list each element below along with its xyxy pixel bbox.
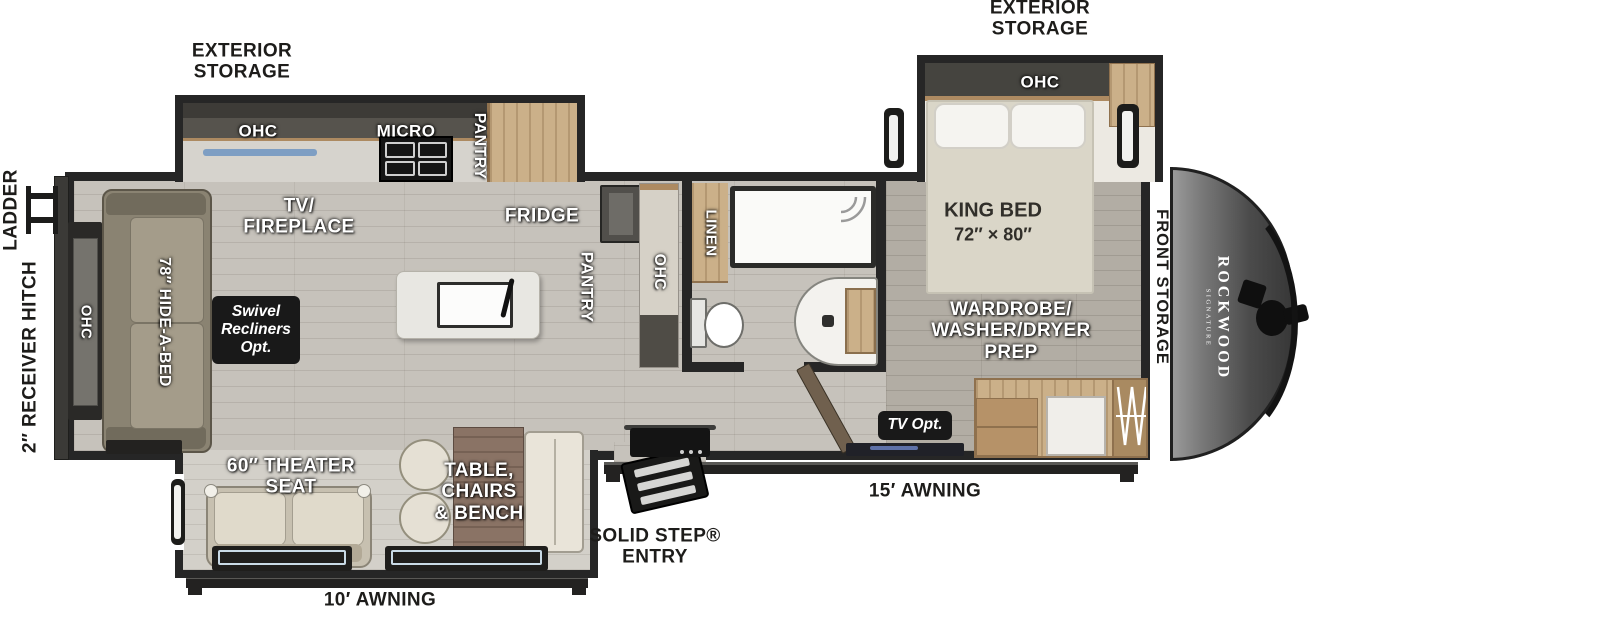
awning-foot: [606, 473, 620, 482]
brand-logo: ROCKWOOD SIGNATURE: [1205, 256, 1232, 380]
shower-head-icon: [839, 195, 867, 223]
vanity-faucet-icon: [822, 315, 834, 327]
fridge: [600, 185, 642, 243]
awning-foot: [188, 587, 202, 595]
wardrobe-drawer: [1046, 396, 1106, 456]
fridge-face: [609, 193, 633, 235]
receiver-hitch-label: 2″ RECEIVER HITCH: [19, 261, 40, 453]
mat-inner: [391, 550, 542, 565]
king-bed-label: KING BED 72″ × 80″: [944, 198, 1042, 246]
dinette-label: TABLE, CHAIRS & BENCH: [434, 460, 523, 524]
toilet-icon: [704, 302, 744, 348]
cupholder-icon: [204, 484, 218, 498]
hide-a-bed-label: 78″ HIDE-A-BED: [155, 257, 173, 387]
burner: [418, 142, 448, 158]
awning-foot: [1120, 473, 1134, 482]
wardrobe-prep-label: WARDROBE/ WASHER/DRYER PREP: [931, 299, 1090, 363]
griddle-knob: [680, 450, 684, 454]
pillow: [1010, 103, 1086, 149]
brand-sub: SIGNATURE: [1205, 256, 1212, 380]
cooktop-icon: [379, 136, 453, 182]
media-console: [846, 443, 964, 456]
shower: [730, 186, 876, 268]
ohc-kitchen-label: OHC: [239, 121, 278, 140]
bed-steps: [976, 398, 1038, 456]
ladder-label: LADDER: [0, 169, 21, 251]
exterior-storage-front-label: EXTERIOR STORAGE: [990, 0, 1090, 40]
griddle-knob: [698, 450, 702, 454]
exterior-storage-rear-label: EXTERIOR STORAGE: [192, 41, 292, 84]
wardrobe-hanger-section: [1112, 380, 1146, 456]
burner: [385, 161, 415, 177]
slide-window-glass: [174, 485, 181, 539]
burner: [418, 161, 448, 177]
wardrobe-hangers-icon: [1116, 383, 1146, 453]
griddle-knob: [689, 450, 693, 454]
ohc-bedroom-label: OHC: [1021, 72, 1060, 91]
theater-seat-label: 60″ THEATER SEAT: [227, 456, 355, 499]
slide-floor-mat: [212, 546, 352, 571]
bath-wall-bottom-a: [682, 362, 744, 372]
brand-name: ROCKWOOD: [1214, 256, 1232, 380]
floor-mat: [106, 440, 182, 454]
linen-label: LINEN: [702, 210, 719, 257]
slide-floor-mat: [385, 546, 548, 571]
swivel-recliners-badge: Swivel Recliners Opt.: [212, 296, 300, 364]
cupholder-icon: [357, 484, 371, 498]
cabinet-base: [640, 315, 678, 367]
ohc-rear-label: OHC: [77, 305, 94, 340]
pantry-kitchen-label: PANTRY: [470, 113, 488, 179]
bench-seam: [554, 439, 556, 545]
kitchen-island: [396, 271, 540, 339]
fridge-label: FRIDGE: [505, 205, 579, 226]
ladder-icon: [26, 186, 58, 234]
mat-inner: [218, 550, 346, 565]
theater-cushion: [292, 492, 364, 546]
bedroom-slide-window-glass: [1122, 111, 1133, 161]
awning-15-label: 15′ AWNING: [869, 480, 981, 501]
console-glint: [870, 446, 918, 450]
ladder-rung: [26, 217, 56, 223]
awning-foot: [572, 587, 586, 595]
bed-step-edge: [977, 426, 1037, 428]
pantry-main-label: PANTRY: [577, 252, 596, 322]
ohc-mid-label: OHC: [650, 254, 668, 291]
cabinet-wood-cap: [640, 184, 678, 190]
front-storage-label: FRONT STORAGE: [1153, 209, 1171, 365]
medicine-cabinet: [845, 288, 876, 354]
bedroom-window-glass: [889, 115, 898, 161]
pantry-cabinet: [487, 103, 577, 182]
sofa-armrest: [106, 193, 206, 215]
awning-10-label: 10′ AWNING: [324, 589, 436, 610]
floorplan-canvas: LADDER 2″ RECEIVER HITCH ROCKWOOD SIGNAT…: [0, 0, 1600, 618]
burner: [385, 142, 415, 158]
micro-label: MICRO: [377, 121, 436, 140]
tv-opt-badge: TV Opt.: [878, 411, 952, 440]
dinette-bench: [524, 431, 584, 553]
tv-fireplace-label: TV/ FIREPLACE: [243, 196, 354, 239]
theater-cushion: [214, 492, 286, 546]
ladder-rung: [26, 193, 56, 199]
pillow: [934, 103, 1010, 149]
solid-step-label: SOLID STEP® ENTRY: [589, 526, 720, 569]
island-sink-icon: [437, 282, 513, 328]
kitchen-sink-icon: [203, 149, 317, 156]
